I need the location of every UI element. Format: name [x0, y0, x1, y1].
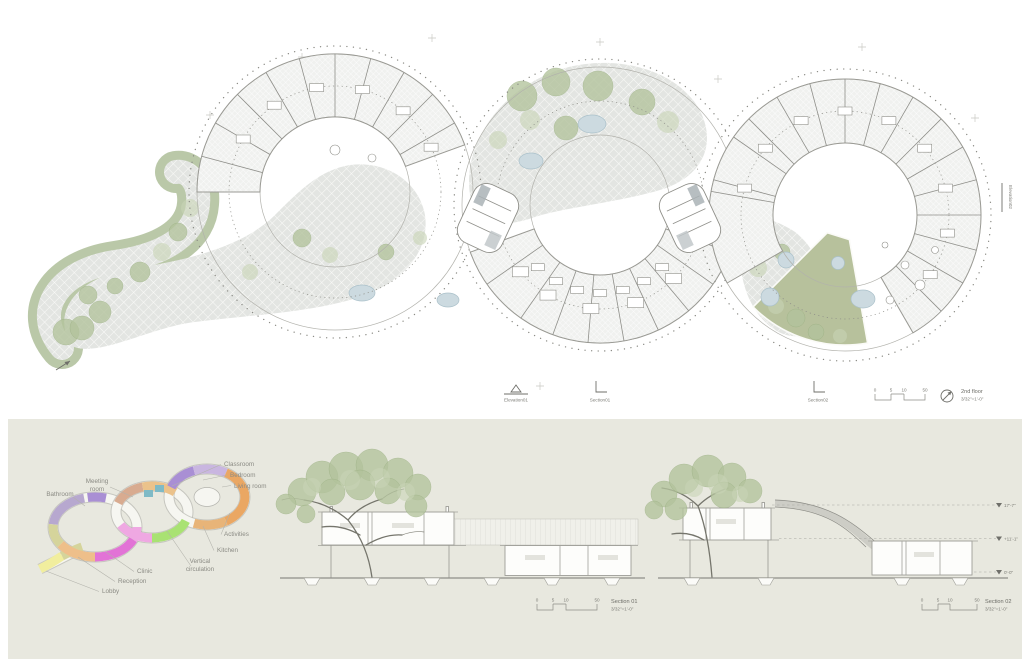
scale-tick: 10 — [947, 598, 953, 603]
bottom-panel: Classroom Bedroom Living room Meeting ro… — [8, 419, 1022, 659]
segment-stairs-2 — [155, 485, 164, 492]
label-meeting-room-1: Meeting — [86, 478, 109, 485]
label-kitchen: Kitchen — [217, 547, 239, 554]
section01-scale: 3/32"=1'-0" — [611, 607, 634, 612]
elevation02-label: Elevation02 — [1008, 185, 1013, 209]
tree — [276, 449, 431, 578]
plan-scale-bar: 0 5 10 50 — [874, 388, 928, 401]
north-indicator-icon — [941, 390, 953, 402]
scale-tick: 10 — [901, 388, 907, 393]
section02-title: Section 02 — [985, 599, 1011, 605]
scale-tick: 0 — [921, 598, 924, 603]
scale-tick: 50 — [922, 388, 928, 393]
label-vertical-1: Vertical — [190, 558, 211, 565]
segment-kitchen — [194, 521, 226, 525]
scale-tick: 50 — [974, 598, 980, 603]
segment-lobby — [40, 556, 62, 569]
segment-purple — [88, 497, 106, 498]
scale-tick: 50 — [594, 598, 600, 603]
sections-sheet: Classroom Bedroom Living room Meeting ro… — [8, 419, 1022, 659]
scale-tick: 5 — [937, 598, 940, 603]
level-label-mid: +11'-1" — [1004, 537, 1018, 542]
scale-tick: 0 — [874, 388, 877, 393]
section02-scale-bar: 0 5 10 50 — [921, 598, 980, 611]
section-01-drawing: 0 5 10 50 Section 01 3/32"=1'-0" — [276, 449, 645, 612]
elevation02-marker: Elevation02 — [1002, 183, 1013, 212]
scale-tick: 0 — [536, 598, 539, 603]
plan-scale: 3/32"=1'-0" — [961, 397, 984, 402]
scale-tick: 10 — [563, 598, 569, 603]
segment-stairs — [144, 490, 153, 497]
label-activities: Activities — [224, 531, 249, 538]
label-lobby: Lobby — [102, 588, 120, 595]
plan-title: 2nd floor — [961, 389, 983, 395]
level-label-top: 17'-7" — [1004, 503, 1016, 508]
label-vertical-2: circulation — [186, 566, 215, 573]
section01-scale-bar: 0 5 10 50 — [536, 598, 600, 611]
label-bedroom: Bedroom — [230, 472, 256, 479]
label-meeting-room-2: room — [90, 486, 104, 493]
segment-meeting-room — [118, 487, 143, 503]
scale-tick: 5 — [890, 388, 893, 393]
site-plan: Elevation01 Section01 Section02 Elevatio… — [0, 0, 1030, 419]
level-label-base: 0'-0" — [1004, 570, 1014, 575]
label-bathroom: Bathroom — [46, 491, 73, 498]
scale-tick: 5 — [552, 598, 555, 603]
section01-label: Section01 — [590, 398, 611, 403]
section-02-drawing: 17'-7" +11'-1" 0'-0" 0 5 10 50 Section 0… — [645, 455, 1018, 612]
section02-marker: Section02 — [808, 381, 829, 403]
section02-scale: 3/32"=1'-0" — [985, 607, 1008, 612]
elevation01-label: Elevation01 — [504, 398, 528, 403]
elevation01-marker: Elevation01 — [504, 385, 528, 403]
label-classroom: Classroom — [224, 461, 254, 468]
program-diagram: Classroom Bedroom Living room Meeting ro… — [40, 461, 267, 595]
section02-label: Section02 — [808, 398, 829, 403]
label-living-room: Living room — [234, 483, 267, 490]
section01-title: Section 01 — [611, 599, 637, 605]
label-reception: Reception — [118, 578, 147, 585]
section01-marker: Section01 — [590, 381, 611, 403]
label-clinic: Clinic — [137, 568, 152, 575]
